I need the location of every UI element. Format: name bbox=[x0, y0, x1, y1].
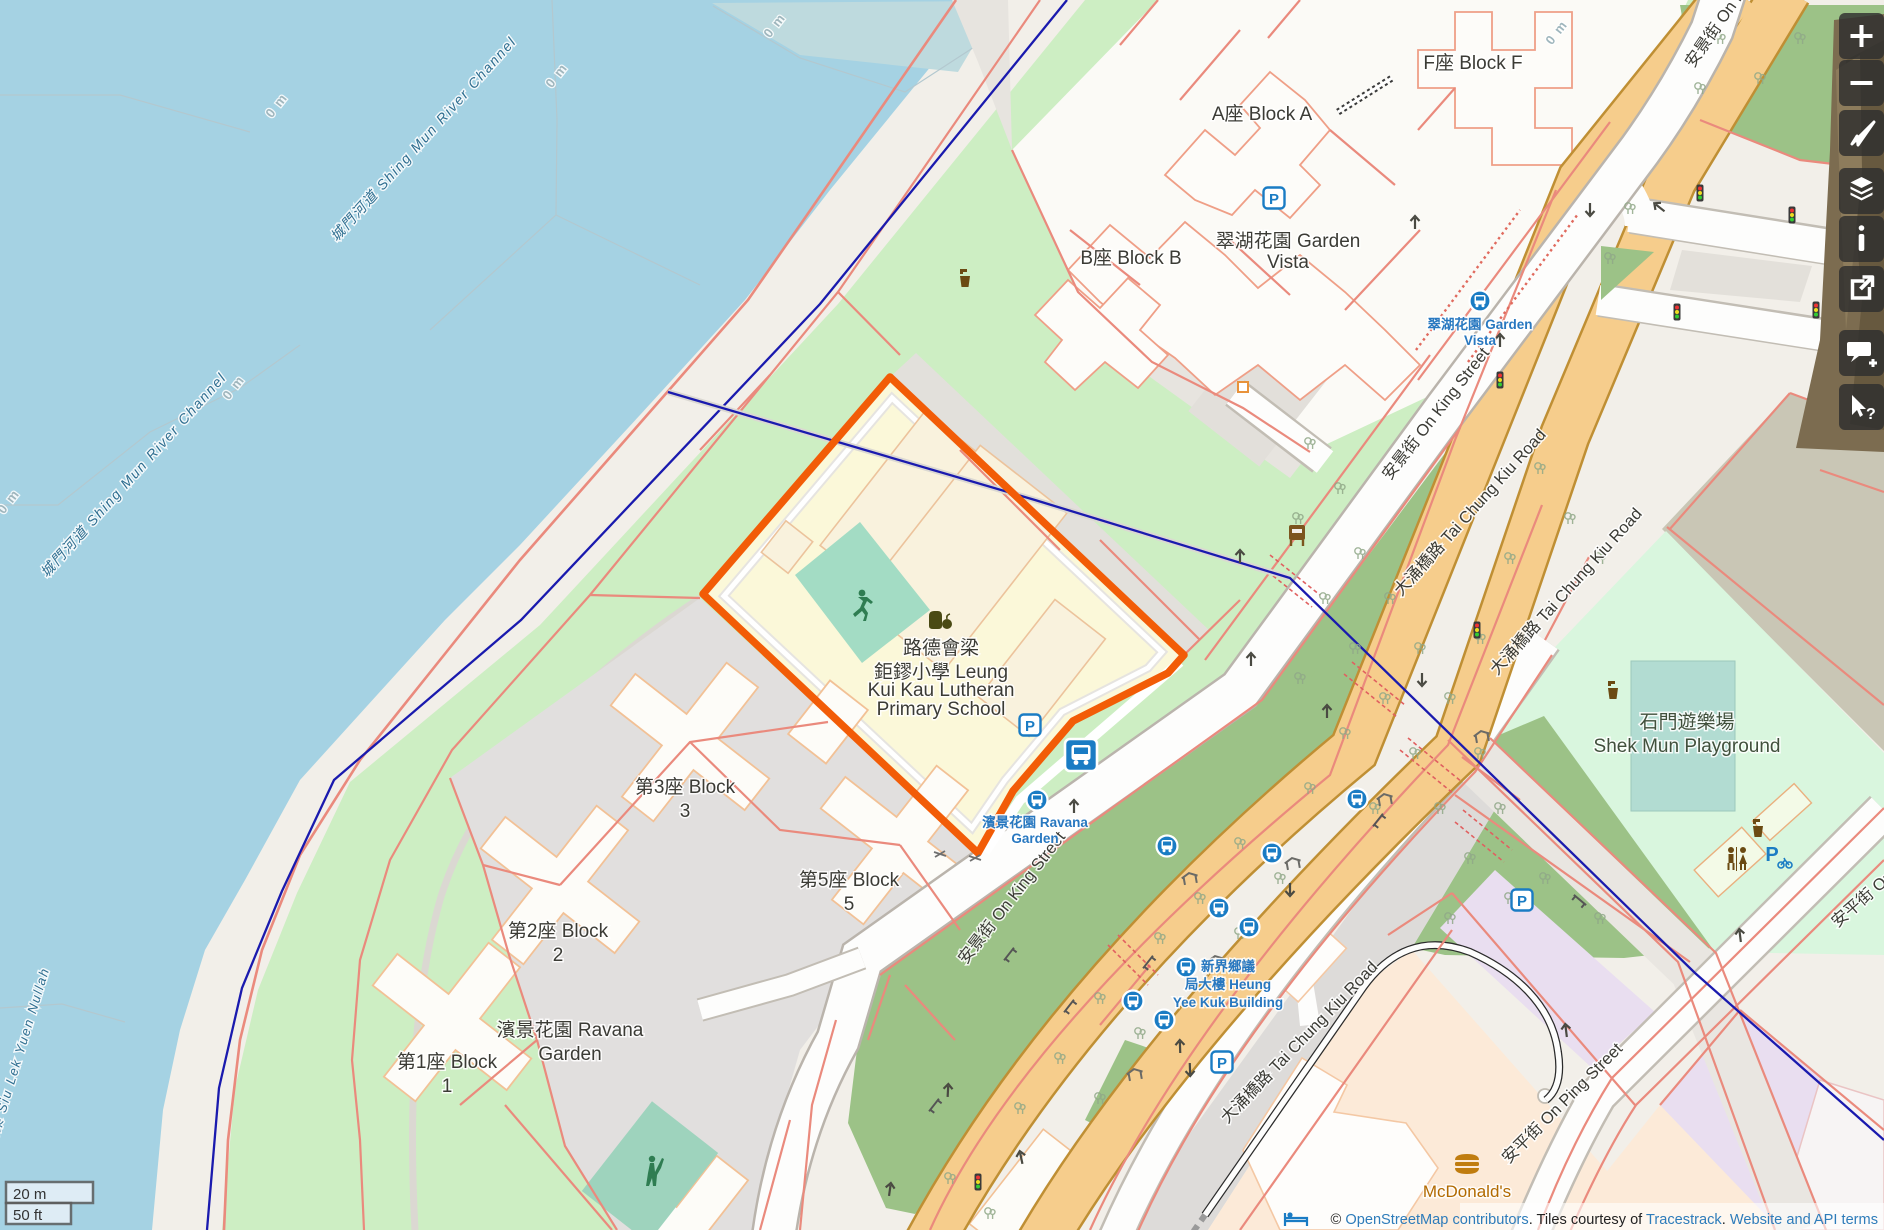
svg-text:Kui Kau Lutheran: Kui Kau Lutheran bbox=[868, 680, 1015, 701]
svg-text:Garden: Garden bbox=[538, 1044, 601, 1065]
svg-text:50 ft: 50 ft bbox=[13, 1207, 43, 1224]
svg-text:路德會梁: 路德會梁 bbox=[903, 637, 979, 659]
svg-text:石門遊樂場: 石門遊樂場 bbox=[1639, 711, 1734, 733]
svg-text:Yee Kuk Building: Yee Kuk Building bbox=[1173, 995, 1283, 1010]
svg-text:3: 3 bbox=[680, 801, 691, 822]
svg-text:濱景花園 Ravana: 濱景花園 Ravana bbox=[497, 1019, 644, 1041]
svg-text:McDonald's: McDonald's bbox=[1423, 1182, 1511, 1201]
svg-text:Vista: Vista bbox=[1464, 333, 1497, 348]
svg-text:5: 5 bbox=[844, 894, 855, 915]
svg-text:第2座 Block: 第2座 Block bbox=[508, 920, 609, 942]
svg-text:翠湖花園 Garden: 翠湖花園 Garden bbox=[1427, 316, 1532, 332]
svg-text:© OpenStreetMap contributors.: © OpenStreetMap contributors. Tiles cour… bbox=[1331, 1212, 1878, 1228]
svg-text:20 m: 20 m bbox=[13, 1186, 46, 1203]
svg-text:Shek Mun Playground: Shek Mun Playground bbox=[1594, 736, 1781, 757]
svg-text:第3座 Block: 第3座 Block bbox=[635, 776, 736, 798]
svg-text:2: 2 bbox=[553, 945, 564, 966]
svg-text:F座 Block F: F座 Block F bbox=[1423, 52, 1522, 74]
svg-text:翠湖花園 Garden: 翠湖花園 Garden bbox=[1216, 230, 1361, 252]
svg-text:Vista: Vista bbox=[1267, 252, 1309, 273]
svg-text:Garden: Garden bbox=[1011, 831, 1058, 846]
svg-text:Primary School: Primary School bbox=[877, 699, 1006, 720]
svg-text:濱景花園 Ravana: 濱景花園 Ravana bbox=[982, 814, 1088, 830]
svg-text:B座 Block B: B座 Block B bbox=[1080, 247, 1181, 269]
svg-text:1: 1 bbox=[442, 1076, 453, 1097]
svg-text:P: P bbox=[1765, 844, 1778, 866]
svg-text:新界鄉議: 新界鄉議 bbox=[1201, 958, 1255, 974]
svg-text:A座 Block A: A座 Block A bbox=[1212, 103, 1313, 125]
svg-text:第5座 Block: 第5座 Block bbox=[799, 869, 900, 891]
svg-text:第1座 Block: 第1座 Block bbox=[397, 1051, 498, 1073]
svg-text:局大樓 Heung: 局大樓 Heung bbox=[1185, 976, 1271, 992]
svg-text:?: ? bbox=[1866, 406, 1876, 423]
